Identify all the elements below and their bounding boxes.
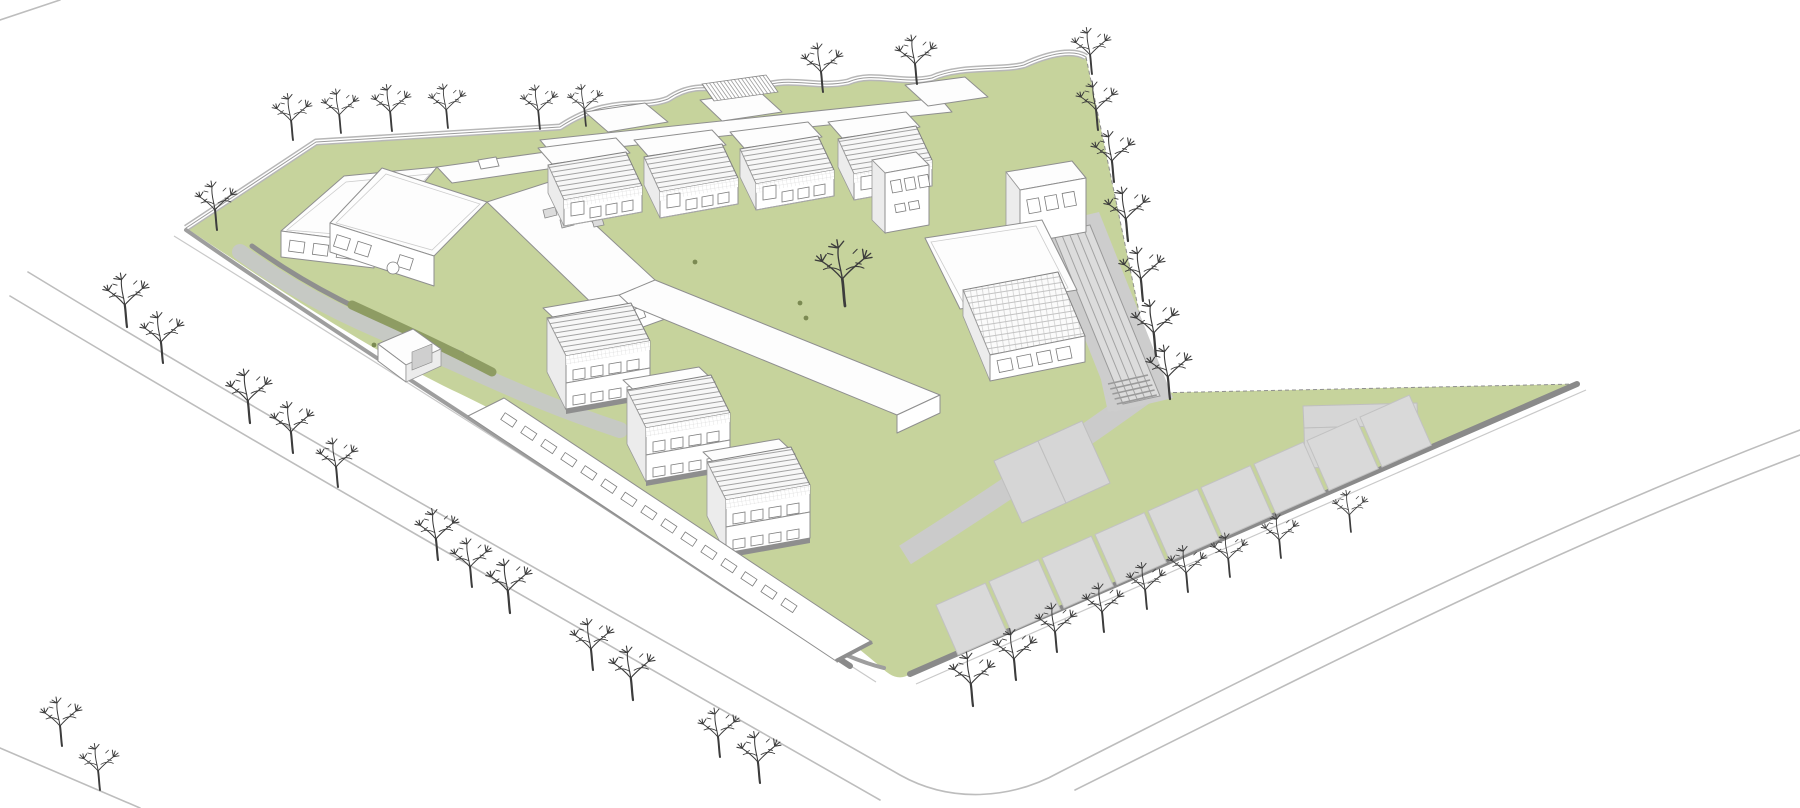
tree bbox=[270, 402, 314, 453]
tree bbox=[520, 85, 558, 129]
rendering-canvas bbox=[0, 0, 1800, 808]
road-edge-topleft bbox=[0, 0, 60, 20]
person-marker bbox=[693, 260, 698, 265]
tree bbox=[103, 273, 149, 327]
tree bbox=[415, 509, 459, 560]
tree bbox=[321, 89, 359, 133]
tree bbox=[40, 697, 82, 746]
tree bbox=[609, 646, 655, 700]
road-edge-corner-stub bbox=[0, 748, 140, 808]
tree bbox=[486, 559, 532, 613]
person-marker bbox=[798, 301, 803, 306]
tree bbox=[140, 312, 184, 363]
stair-tower bbox=[872, 152, 933, 233]
tree bbox=[450, 538, 492, 587]
round-window bbox=[387, 262, 399, 274]
tree bbox=[949, 652, 995, 706]
tree bbox=[371, 84, 411, 131]
tree bbox=[226, 369, 272, 423]
campus-axonometric-rendering bbox=[0, 0, 1800, 808]
person-marker bbox=[372, 343, 377, 348]
tree bbox=[1332, 490, 1368, 532]
tree bbox=[272, 93, 312, 140]
tree bbox=[698, 708, 740, 757]
tree bbox=[79, 743, 119, 790]
person-marker bbox=[804, 316, 809, 321]
tree bbox=[428, 84, 466, 128]
